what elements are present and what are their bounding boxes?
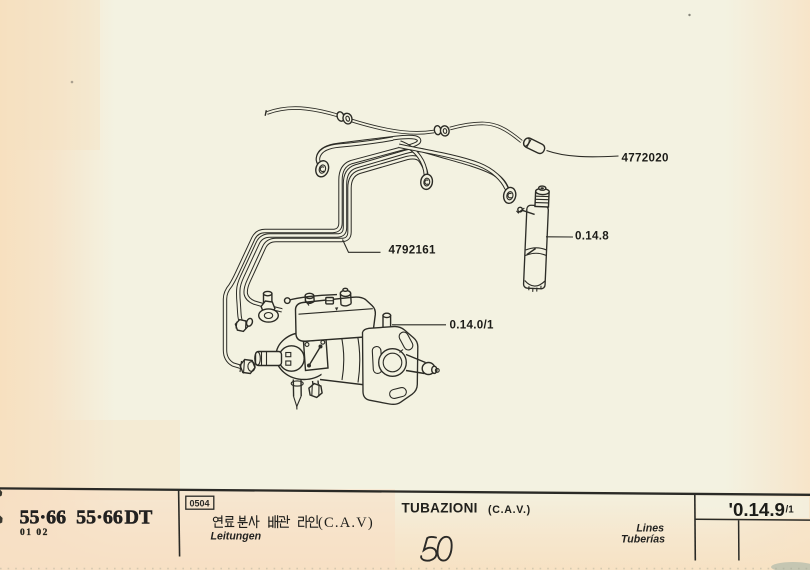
svg-text:55·66 55·66 DT: 55·66 55·66 DT — [20, 507, 153, 529]
svg-text:0504: 0504 — [190, 499, 210, 509]
svg-text:'0.14.9: '0.14.9 — [729, 499, 785, 520]
svg-text:(C.A.V.): (C.A.V.) — [488, 504, 531, 516]
svg-text:0.14.0/1: 0.14.0/1 — [450, 319, 495, 332]
svg-text:01 02: 01 02 — [20, 528, 49, 538]
svg-text:/1: /1 — [786, 505, 795, 516]
svg-text:TUBAZIONI: TUBAZIONI — [402, 500, 478, 515]
svg-text:4772020: 4772020 — [622, 151, 669, 164]
svg-text:4792161: 4792161 — [389, 244, 436, 257]
svg-text:(C.A.V): (C.A.V) — [318, 515, 374, 531]
svg-text:Leitungen: Leitungen — [211, 530, 262, 542]
svg-text:Tuberías: Tuberías — [621, 533, 665, 545]
svg-text:0.14.8: 0.14.8 — [575, 230, 609, 243]
